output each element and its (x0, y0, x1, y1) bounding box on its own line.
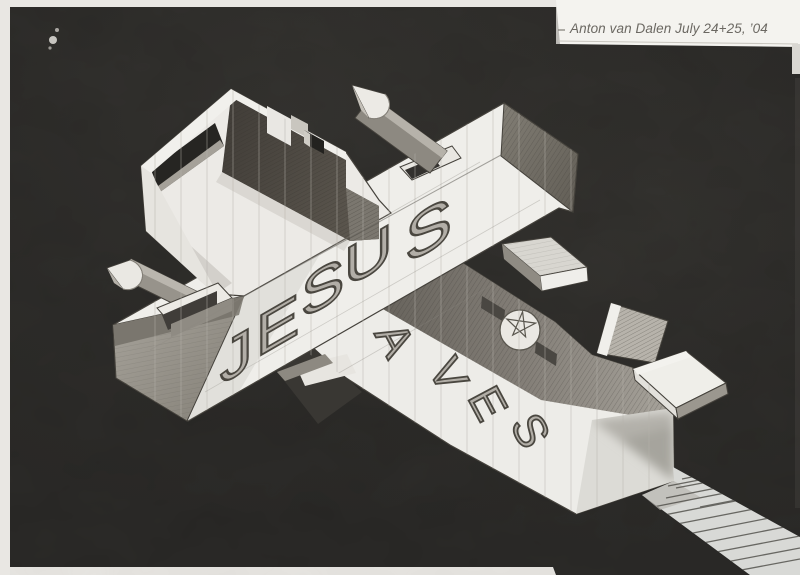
svg-text:Anton van Dalen July 24+25, ’: Anton van Dalen July 24+25, ’04 (569, 21, 768, 36)
